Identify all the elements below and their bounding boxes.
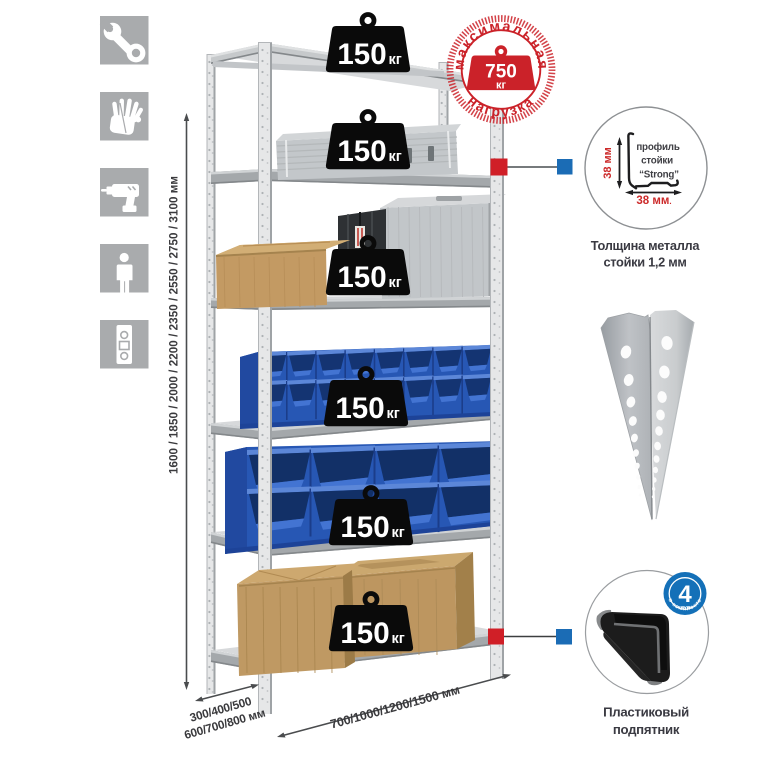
svg-text:кг: кг <box>496 80 507 92</box>
svg-text:38 мм: 38 мм <box>602 147 614 179</box>
svg-text:подпятник: подпятник <box>613 722 680 737</box>
svg-text:Толщина металла: Толщина металла <box>591 238 701 253</box>
svg-text:стойки 1,2 мм: стойки 1,2 мм <box>603 255 686 270</box>
svg-text:профиль: профиль <box>636 142 680 153</box>
svg-text:1600 / 1850 / 2000 / 2200 / 23: 1600 / 1850 / 2000 / 2200 / 2350 / 2550 … <box>168 176 181 474</box>
svg-text:Пластиковый: Пластиковый <box>603 705 689 720</box>
svg-text:38 мм.: 38 мм. <box>636 195 671 207</box>
svg-text:“Strong”: “Strong” <box>639 170 679 181</box>
svg-text:стойки: стойки <box>641 156 673 167</box>
